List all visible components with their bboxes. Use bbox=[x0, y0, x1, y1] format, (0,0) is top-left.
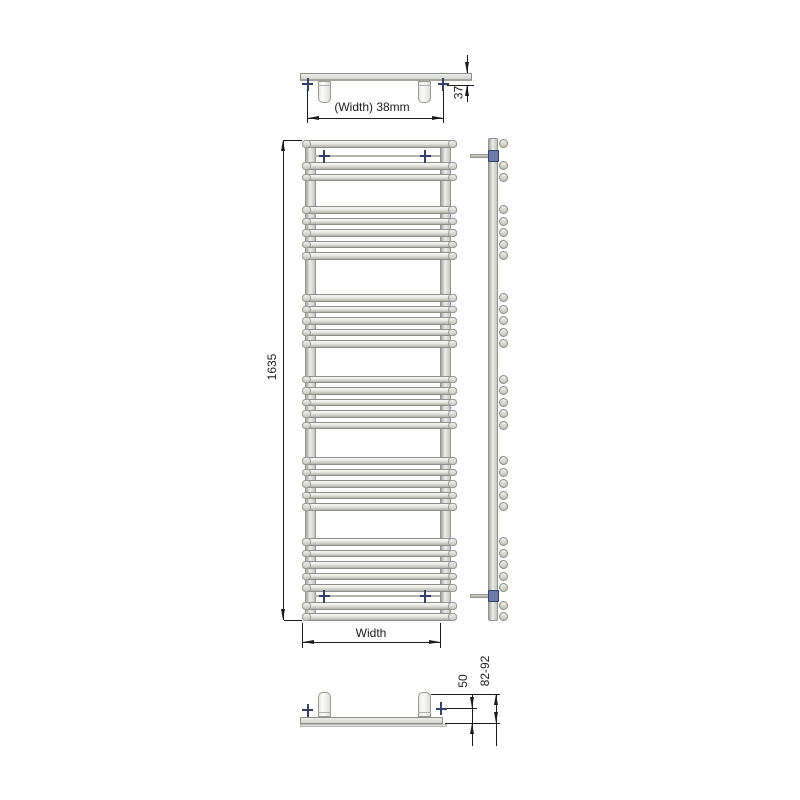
dim-arrow bbox=[494, 694, 498, 705]
bottom-view-mount-cylinder-left bbox=[318, 692, 331, 717]
side-bracket-arm bbox=[470, 154, 489, 158]
side-view-brackets-layer bbox=[0, 0, 800, 800]
dim-wall-to-rail-label: 50 bbox=[456, 666, 470, 696]
side-bracket-nut bbox=[488, 150, 499, 162]
side-bracket-arm bbox=[470, 594, 489, 598]
bottom-view-valve-cross-left bbox=[301, 704, 314, 717]
dim-arrow bbox=[470, 723, 474, 734]
bottom-view-valve-cross-right bbox=[435, 702, 448, 715]
technical-drawing-canvas: (Width) 38mm 37 1635 Width bbox=[0, 0, 800, 800]
bottom-view-wall-rail-lip bbox=[300, 724, 447, 727]
dim-arrow bbox=[494, 712, 498, 723]
bottom-view-mount-cylinder-right bbox=[418, 692, 431, 717]
dim-wall-to-front-label: 82-92 bbox=[478, 648, 492, 694]
dim-arrow bbox=[470, 697, 474, 708]
side-bracket-nut bbox=[488, 590, 499, 602]
